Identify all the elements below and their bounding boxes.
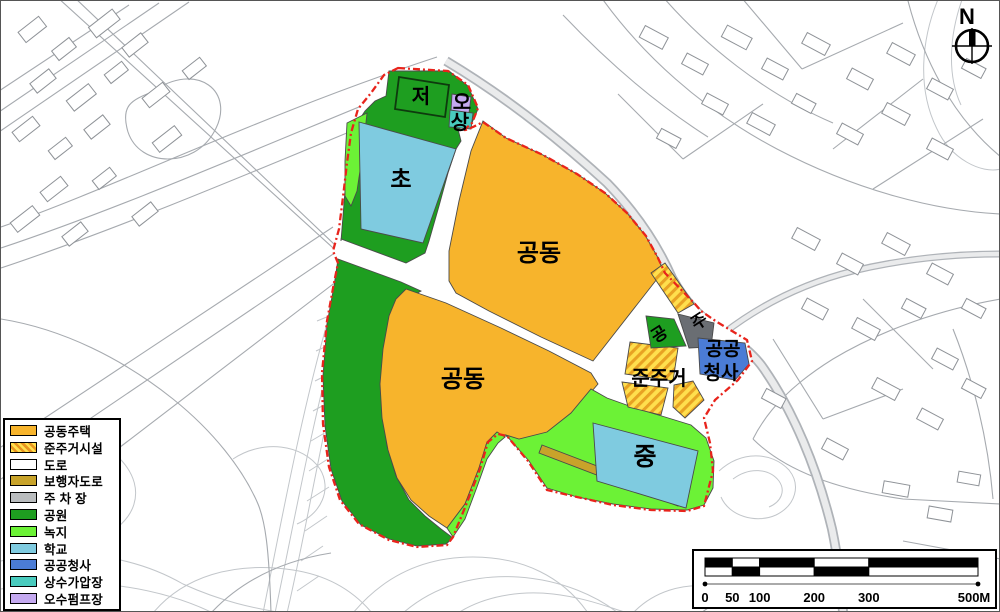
label-public-office-1: 공공 xyxy=(706,339,741,360)
scale-tick-200: 200 xyxy=(803,590,825,605)
legend-item-apartment: 공동주택 xyxy=(10,423,117,437)
north-arrow-needle xyxy=(969,29,976,46)
legend-item-water-booster: 상수가압장 xyxy=(10,575,117,589)
legend-swatch-school xyxy=(10,543,37,554)
scale-tick-0: 0 xyxy=(701,590,708,605)
legend-item-park: 공원 xyxy=(10,507,117,521)
legend-item-public-office: 공공청사 xyxy=(10,558,117,572)
plan-area: 저 오 상 초 공동 공동 공 주 공공 청사 준주거 중 xyxy=(322,68,752,547)
legend-swatch-park xyxy=(10,509,37,520)
legend-swatch-semi-residential xyxy=(10,442,37,453)
legend-item-greenbelt: 녹지 xyxy=(10,524,117,538)
legend-swatch-pedestrian-road xyxy=(10,475,37,486)
label-water-booster: 상 xyxy=(451,111,470,134)
label-apartment-top: 공동 xyxy=(517,240,561,267)
legend-swatch-water-booster xyxy=(10,576,37,587)
legend: 공동주택 준주거시설 도로 보행자도로 주 차 장 공원 녹지 학교 공공청사 … xyxy=(3,418,121,611)
legend-item-semi-residential: 준주거시설 xyxy=(10,440,117,454)
north-label: N xyxy=(959,4,975,29)
legend-item-pedestrian-road: 보행자도로 xyxy=(10,474,117,488)
legend-item-school: 학교 xyxy=(10,541,117,555)
scale-bar: 0 50 100 200 300 500M xyxy=(692,549,997,609)
legend-swatch-greenbelt xyxy=(10,526,37,537)
legend-swatch-parking xyxy=(10,492,37,503)
legend-label-sewage-pump: 오수펌프장 xyxy=(44,589,103,608)
scale-tick-100: 100 xyxy=(749,590,771,605)
label-semi-residential: 준주거 xyxy=(631,367,686,390)
legend-swatch-road xyxy=(10,459,37,470)
legend-item-sewage-pump: 오수펌프장 xyxy=(10,592,117,606)
label-middle-school: 중 xyxy=(633,443,656,471)
legend-swatch-sewage-pump xyxy=(10,593,37,604)
label-sewage-pump: 오 xyxy=(453,92,471,114)
legend-swatch-public-office xyxy=(10,559,37,570)
scale-tick-500: 500M xyxy=(958,590,991,605)
legend-swatch-apartment xyxy=(10,425,37,436)
legend-item-road: 도로 xyxy=(10,457,117,471)
label-public-office-2: 청사 xyxy=(704,362,739,384)
legend-item-parking: 주 차 장 xyxy=(10,491,117,505)
label-apartment-bottom: 공동 xyxy=(441,366,485,393)
land-use-plan-map: 저 오 상 초 공동 공동 공 주 공공 청사 준주거 중 N 공동주택 준주거… xyxy=(0,0,1000,612)
map-svg: 저 오 상 초 공동 공동 공 주 공공 청사 준주거 중 N xyxy=(1,1,1000,612)
scale-tick-300: 300 xyxy=(858,590,880,605)
label-elementary-school: 초 xyxy=(390,166,411,192)
scale-tick-50: 50 xyxy=(725,590,739,605)
label-detention: 저 xyxy=(412,85,430,108)
